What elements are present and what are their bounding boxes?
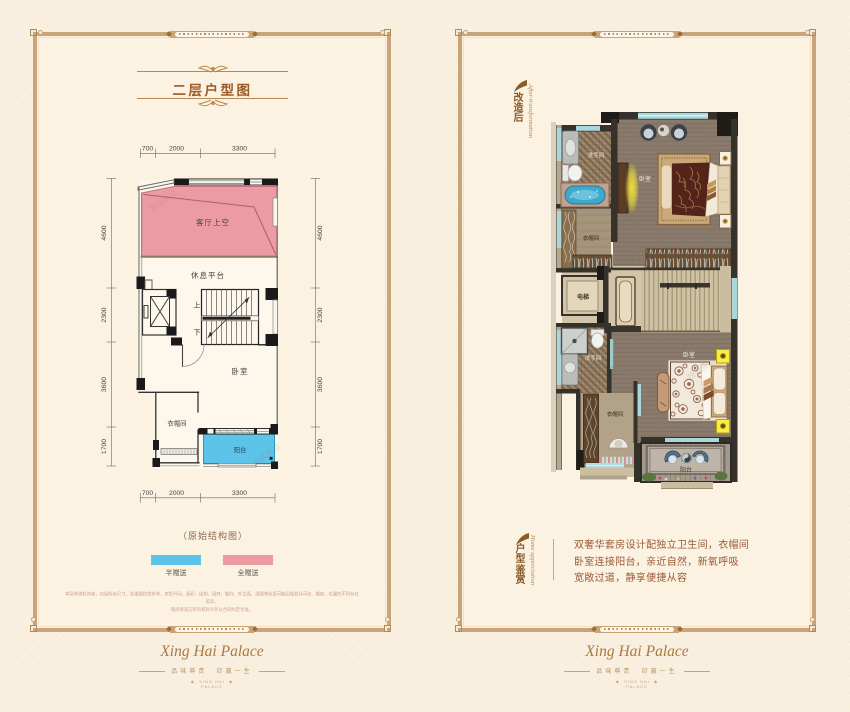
svg-text:卧室: 卧室 <box>639 175 651 183</box>
svg-text:700: 700 <box>142 146 154 153</box>
svg-text:客厅上空: 客厅上空 <box>196 217 230 227</box>
svg-text:电梯: 电梯 <box>577 293 589 301</box>
svg-text:3600: 3600 <box>317 377 324 392</box>
svg-text:洗手间: 洗手间 <box>588 151 605 159</box>
svg-text:4600: 4600 <box>101 225 108 240</box>
svg-text:卧室: 卧室 <box>683 351 695 359</box>
svg-text:2300: 2300 <box>101 307 108 322</box>
svg-text:上: 上 <box>194 301 201 310</box>
svg-text:700: 700 <box>142 490 154 497</box>
svg-text:1700: 1700 <box>317 439 324 454</box>
svg-text:洗手间: 洗手间 <box>585 354 602 362</box>
svg-text:衣帽间: 衣帽间 <box>583 234 600 242</box>
svg-text:2000: 2000 <box>169 490 184 497</box>
svg-text:阳台: 阳台 <box>680 466 692 474</box>
svg-text:2300: 2300 <box>317 307 324 322</box>
svg-text:衣帽间: 衣帽间 <box>607 410 624 418</box>
svg-text:4600: 4600 <box>317 225 324 240</box>
svg-text:休息平台: 休息平台 <box>191 270 225 280</box>
svg-text:3300: 3300 <box>232 146 247 153</box>
svg-text:1700: 1700 <box>101 439 108 454</box>
svg-text:下: 下 <box>194 329 201 337</box>
svg-text:卧室: 卧室 <box>232 366 249 376</box>
svg-text:3600: 3600 <box>101 377 108 392</box>
svg-text:衣帽间: 衣帽间 <box>168 419 187 428</box>
svg-text:3300: 3300 <box>232 490 247 497</box>
svg-text:2000: 2000 <box>169 146 184 153</box>
svg-text:阳台: 阳台 <box>234 445 247 454</box>
